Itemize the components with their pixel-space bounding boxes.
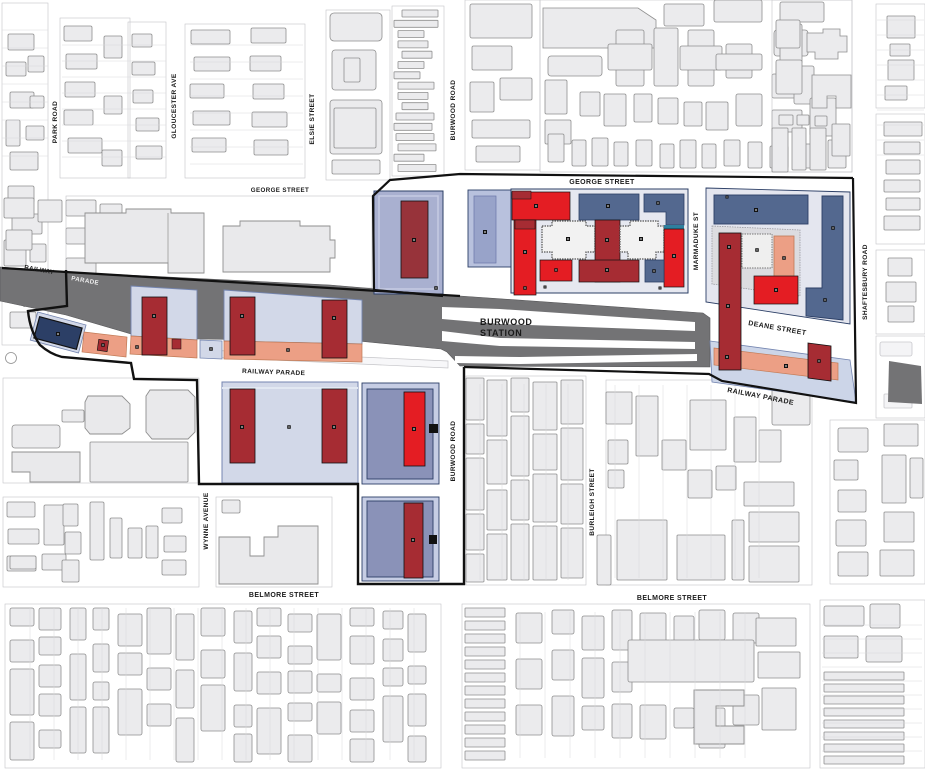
svg-text:BURWOOD ROAD: BURWOOD ROAD [450,421,457,482]
svg-text:MARMADUKE ST: MARMADUKE ST [693,212,700,270]
svg-text:WYNNE AVENUE: WYNNE AVENUE [203,492,210,549]
svg-text:BELMORE STREET: BELMORE STREET [249,592,319,599]
svg-text:BURWOOD: BURWOOD [480,317,533,327]
svg-text:PARK ROAD: PARK ROAD [52,101,59,143]
svg-text:BURLEIGH STREET: BURLEIGH STREET [589,468,596,535]
svg-text:BELMORE STREET: BELMORE STREET [637,595,707,602]
svg-text:GEORGE STREET: GEORGE STREET [569,179,635,186]
svg-text:GEORGE STREET: GEORGE STREET [251,187,310,194]
svg-text:STATION: STATION [480,328,522,338]
svg-text:SHAFTESBURY ROAD: SHAFTESBURY ROAD [862,244,869,320]
svg-text:ELSIE STREET: ELSIE STREET [309,93,316,144]
svg-text:GLOUCESTER AVE: GLOUCESTER AVE [171,73,178,138]
svg-text:BURWOOD ROAD: BURWOOD ROAD [450,80,457,141]
